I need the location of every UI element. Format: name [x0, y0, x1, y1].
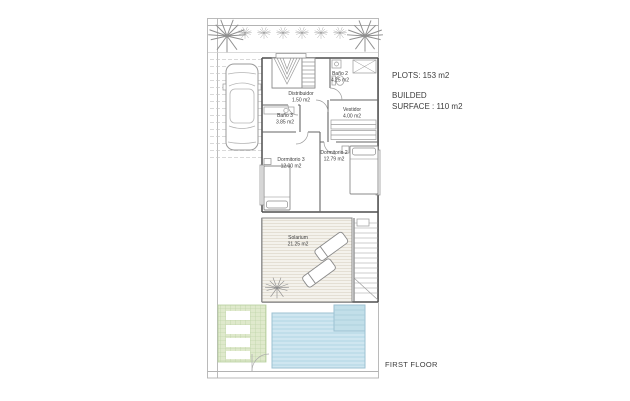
room-name: Vestidor: [343, 107, 361, 113]
closet-icon: [331, 120, 376, 140]
pool: [272, 305, 365, 368]
paver-stone: [226, 351, 250, 359]
plant-icon: [257, 27, 271, 39]
floor-plan-drawing: [0, 0, 630, 401]
floor-plan-page: Baño 2 4.25 m2 Distribuidor 1.50 m2 Baño…: [0, 0, 630, 401]
plant-icon: [238, 27, 252, 39]
room-area: 1.50 m2: [288, 97, 313, 103]
paver-stone: [226, 325, 250, 334]
room-label-solarium: Solarium 21.25 m2: [288, 235, 309, 248]
room-name: Dormitorio 2: [320, 150, 347, 156]
external-stairs-icon: [354, 218, 378, 302]
room-label-dormitorio2: Dormitorio 2 12.79 m2: [320, 150, 347, 163]
room-area: 3.85 m2: [276, 119, 294, 125]
solarium-deck: [262, 218, 352, 302]
room-name: Dormitorio 3: [277, 157, 304, 163]
paver-stone: [226, 311, 250, 320]
builded-line2: SURFACE : 110 m2: [392, 102, 463, 113]
grass-pavers: [218, 305, 266, 362]
floor-title: FIRST FLOOR: [385, 360, 438, 369]
plant-icon: [295, 27, 309, 39]
room-label-bano3: Baño 3 3.85 m2: [276, 113, 294, 126]
builded-line1: BUILDED: [392, 91, 463, 102]
room-area: 12.00 m2: [277, 163, 304, 169]
plant-icon: [276, 27, 290, 39]
plant-icon: [333, 27, 347, 39]
room-area: 12.79 m2: [320, 156, 347, 162]
stairs-icon: [272, 58, 315, 88]
builded-surface-label: BUILDED SURFACE : 110 m2: [392, 91, 463, 113]
room-name: Baño 2: [331, 71, 349, 77]
car-icon: [223, 64, 261, 150]
paver-stone: [226, 338, 250, 347]
pool-steps: [334, 305, 365, 331]
room-label-vestidor: Vestidor 4.00 m2: [343, 107, 361, 120]
sink-icon: [332, 60, 341, 68]
room-label-bano2: Baño 2 4.25 m2: [331, 71, 349, 84]
room-name: Distribuidor: [288, 91, 313, 97]
room-area: 4.00 m2: [343, 113, 361, 119]
garden-strip: [208, 20, 383, 53]
room-name: Solarium: [288, 235, 309, 241]
plant-icon: [314, 27, 328, 39]
room-area: 4.25 m2: [331, 77, 349, 83]
room-name: Baño 3: [276, 113, 294, 119]
room-area: 21.25 m2: [288, 241, 309, 247]
palm-tree-icon: [208, 20, 246, 53]
plots-label: PLOTS: 153 m2: [392, 71, 449, 80]
room-label-distribuidor: Distribuidor 1.50 m2: [288, 91, 313, 104]
room-label-dormitorio3: Dormitorio 3 12.00 m2: [277, 157, 304, 170]
